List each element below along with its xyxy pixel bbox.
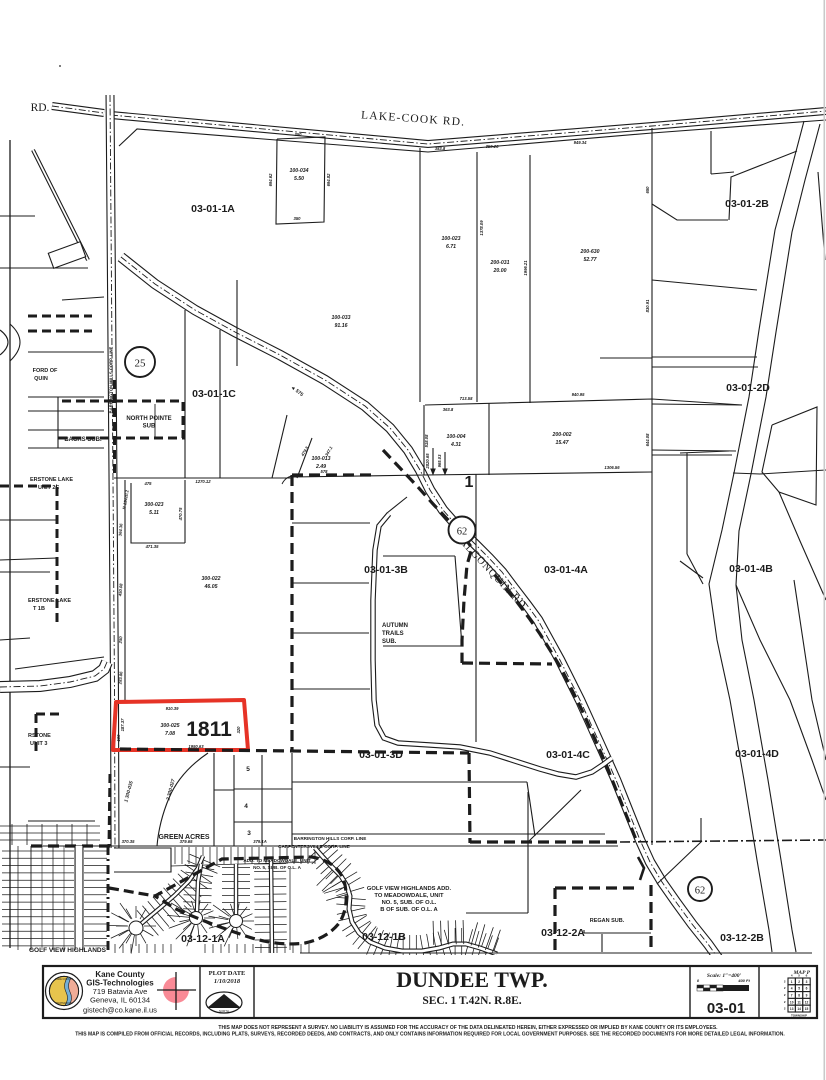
svg-text:03-01-1C: 03-01-1C [192, 388, 236, 400]
svg-text:03-01-3B: 03-01-3B [364, 564, 408, 576]
svg-text:2: 2 [798, 980, 800, 984]
svg-text:03-01-2D: 03-01-2D [726, 382, 770, 394]
svg-text:UNIT 3: UNIT 3 [30, 741, 47, 747]
svg-text:03-12-2A: 03-12-2A [541, 927, 585, 939]
svg-text:350: 350 [295, 132, 303, 137]
svg-text:Scale: 1″=400′: Scale: 1″=400′ [707, 973, 742, 979]
svg-text:03-12-2B: 03-12-2B [720, 932, 764, 944]
svg-text:14: 14 [797, 1007, 801, 1011]
svg-text:100-004: 100-004 [446, 434, 465, 440]
svg-text:7.08: 7.08 [165, 731, 175, 737]
svg-text:UNIT 2C: UNIT 2C [38, 485, 59, 491]
svg-text:10: 10 [790, 1000, 794, 1004]
svg-text:1: 1 [465, 474, 474, 491]
svg-text:1811: 1811 [186, 718, 232, 741]
svg-text:BARRINGTON HILLS CORP. LINE: BARRINGTON HILLS CORP. LINE [294, 836, 367, 841]
svg-text:713.58: 713.58 [460, 396, 473, 401]
svg-text:15: 15 [805, 1007, 809, 1011]
svg-text:PLOT DATE: PLOT DATE [209, 970, 246, 977]
svg-text:T 1B: T 1B [33, 606, 45, 612]
svg-text:100-033: 100-033 [331, 315, 350, 321]
svg-text:RD.: RD. [31, 102, 50, 114]
svg-text:03-01-4A: 03-01-4A [544, 564, 588, 576]
svg-text:7: 7 [791, 994, 793, 998]
svg-text:ERSTONE LAKE: ERSTONE LAKE [28, 598, 71, 604]
svg-text:TECHNOLOGY: TECHNOLOGY [56, 1002, 73, 1005]
svg-text:4: 4 [791, 987, 793, 991]
svg-text:13: 13 [790, 1007, 794, 1011]
svg-text:46.05: 46.05 [204, 584, 218, 590]
svg-text:SUB: SUB [143, 424, 156, 430]
svg-text:8: 8 [798, 994, 800, 998]
svg-text:BARRINGTON MILLS CORP. LINE: BARRINGTON MILLS CORP. LINE [109, 346, 114, 413]
svg-text:1306.56: 1306.56 [604, 465, 620, 470]
svg-text:11: 11 [797, 1000, 801, 1004]
svg-text:03-01-4C: 03-01-4C [546, 749, 590, 761]
svg-text:KANE COUNTY: KANE COUNTY [55, 978, 73, 981]
svg-text:TO MEADOWDALE, UNIT: TO MEADOWDALE, UNIT [374, 893, 444, 899]
svg-text:250: 250 [118, 636, 124, 645]
svg-text:100-034: 100-034 [289, 168, 308, 174]
svg-text:1/10/2018: 1/10/2018 [214, 978, 241, 985]
svg-text:949.34: 949.34 [574, 140, 587, 145]
svg-text:471.35: 471.35 [145, 544, 159, 549]
svg-text:910.39: 910.39 [166, 706, 179, 711]
svg-text:518.08: 518.08 [424, 434, 429, 447]
svg-text:100-023: 100-023 [441, 236, 460, 242]
svg-text:QUIN: QUIN [34, 376, 48, 382]
svg-text:20.00: 20.00 [493, 268, 507, 274]
svg-text:TOWNSHIP: TOWNSHIP [791, 1014, 807, 1018]
svg-text:3: 3 [806, 980, 808, 984]
svg-text:200-002: 200-002 [551, 432, 571, 438]
svg-text:Geneva, IL 60134: Geneva, IL 60134 [90, 996, 150, 1005]
svg-text:940.95: 940.95 [572, 392, 585, 397]
svg-text:THIS MAP IS COMPILED FROM OFFI: THIS MAP IS COMPILED FROM OFFICIAL RECOR… [75, 1032, 785, 1038]
svg-text:578: 578 [321, 469, 329, 474]
svg-text:5: 5 [246, 766, 250, 773]
svg-text:300-025: 300-025 [160, 723, 179, 729]
svg-text:FORD OF: FORD OF [33, 368, 58, 374]
svg-text:DUNDEE TWP.: DUNDEE TWP. [396, 967, 548, 992]
svg-text:ERSTONE LAKE: ERSTONE LAKE [30, 477, 73, 483]
svg-text:200-031: 200-031 [489, 260, 509, 266]
svg-text:03-01: 03-01 [707, 1000, 745, 1017]
svg-text:1378.09: 1378.09 [479, 220, 484, 236]
svg-text:NORTH POINTE: NORTH POINTE [126, 416, 171, 422]
svg-text:NORTH: NORTH [219, 1009, 229, 1013]
svg-text:03-01-4D: 03-01-4D [735, 748, 779, 760]
svg-text:03-01-2B: 03-01-2B [725, 198, 769, 210]
svg-text:187.37: 187.37 [120, 718, 125, 731]
svg-text:MAP P: MAP P [793, 970, 811, 976]
svg-text:383.8: 383.8 [435, 146, 446, 151]
svg-text:350.26: 350.26 [486, 144, 499, 149]
svg-text:03-01-1A: 03-01-1A [191, 203, 235, 215]
svg-text:200-630: 200-630 [579, 249, 599, 255]
svg-text:965.03: 965.03 [437, 454, 442, 467]
svg-text:1996.21: 1996.21 [523, 260, 528, 276]
svg-text:5.50: 5.50 [294, 176, 304, 182]
svg-text:AUTUMN: AUTUMN [382, 623, 408, 629]
svg-text:91.16: 91.16 [335, 323, 348, 329]
svg-text:363.8: 363.8 [443, 407, 454, 412]
svg-text:gistech@co.kane.il.us: gistech@co.kane.il.us [83, 1006, 157, 1015]
svg-text:5: 5 [798, 987, 800, 991]
svg-text:62: 62 [695, 886, 706, 897]
svg-text:694.82: 694.82 [326, 173, 331, 186]
svg-text:SUB.: SUB. [382, 639, 397, 645]
svg-text:1270.12: 1270.12 [195, 479, 211, 484]
svg-text:03-01-3D: 03-01-3D [359, 749, 403, 761]
svg-text:320: 320 [236, 726, 241, 734]
svg-text:GOLF VIEW HIGHLANDS ADD.: GOLF VIEW HIGHLANDS ADD. [367, 886, 452, 892]
svg-text:THIS MAP DOES NOT REPRESENT A: THIS MAP DOES NOT REPRESENT A SURVEY. NO… [218, 1025, 718, 1031]
svg-text:NO. 5, SUB. OF O.L.: NO. 5, SUB. OF O.L. [382, 900, 437, 906]
svg-text:15.47: 15.47 [556, 440, 570, 446]
svg-text:475: 475 [144, 481, 153, 486]
svg-text:694.62: 694.62 [268, 173, 273, 186]
svg-text:644.08: 644.08 [645, 433, 650, 446]
svg-text:9: 9 [806, 994, 808, 998]
svg-text:GOLF VIEW HIGHLANDS: GOLF VIEW HIGHLANDS [29, 947, 107, 954]
svg-text:25: 25 [135, 358, 147, 370]
svg-text:TRAILS: TRAILS [382, 631, 404, 637]
svg-text:1: 1 [791, 980, 793, 984]
svg-text:650: 650 [645, 186, 650, 194]
svg-text:6.71: 6.71 [446, 244, 456, 250]
svg-text:830.91: 830.91 [645, 299, 650, 312]
svg-text:03-12-1A: 03-12-1A [181, 933, 225, 945]
svg-text:03-12-1B: 03-12-1B [362, 931, 406, 943]
svg-text:62: 62 [457, 527, 468, 538]
svg-text:370.35: 370.35 [122, 839, 135, 844]
svg-text:RSTONE: RSTONE [28, 733, 51, 739]
svg-text:379.1A: 379.1A [253, 839, 267, 844]
svg-text:300-023: 300-023 [144, 502, 163, 508]
svg-text:NO. 5, SUB. OF O.L. A: NO. 5, SUB. OF O.L. A [253, 865, 301, 870]
svg-text:2820.65: 2820.65 [425, 453, 430, 470]
svg-text:ADD. TO MEADOWDALE, UNIT: ADD. TO MEADOWDALE, UNIT [243, 858, 310, 863]
svg-text:470.75: 470.75 [178, 507, 183, 521]
svg-text:SEC. 1 T.42N. R.8E.: SEC. 1 T.42N. R.8E. [422, 995, 521, 1007]
svg-text:03-01-4B: 03-01-4B [729, 563, 773, 575]
svg-text:3: 3 [247, 830, 251, 837]
svg-text:350: 350 [294, 216, 302, 221]
svg-text:12: 12 [805, 1000, 809, 1004]
svg-text:BACHS SUB.: BACHS SUB. [64, 437, 102, 443]
svg-text:100: 100 [116, 734, 121, 742]
svg-text:5.11: 5.11 [149, 510, 159, 516]
svg-text:6: 6 [806, 987, 808, 991]
svg-text:B OF SUB. OF O.L. A: B OF SUB. OF O.L. A [380, 907, 438, 913]
svg-text:4.31: 4.31 [450, 442, 461, 448]
svg-text:52.77: 52.77 [584, 257, 598, 263]
svg-text:4: 4 [244, 803, 248, 810]
svg-text:300-022: 300-022 [201, 576, 220, 582]
svg-text:379.65: 379.65 [180, 839, 193, 844]
svg-text:REGAN SUB.: REGAN SUB. [590, 918, 625, 924]
svg-text:400 Ft: 400 Ft [737, 978, 750, 983]
